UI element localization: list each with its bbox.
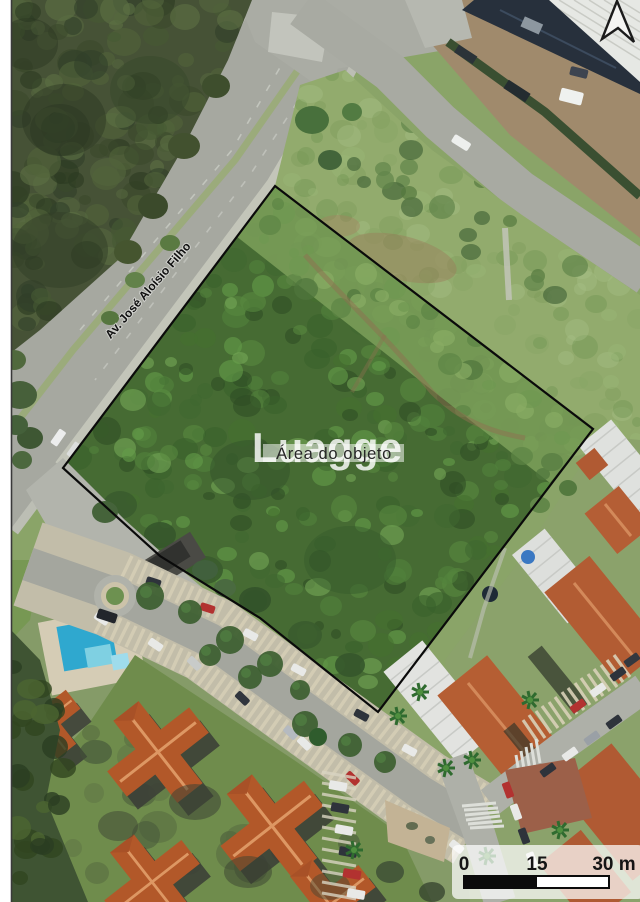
svg-text:15: 15 xyxy=(526,854,548,875)
svg-text:30 m: 30 m xyxy=(592,854,635,875)
svg-text:0: 0 xyxy=(459,854,470,875)
svg-text:Área do objeto: Área do objeto xyxy=(276,444,392,463)
